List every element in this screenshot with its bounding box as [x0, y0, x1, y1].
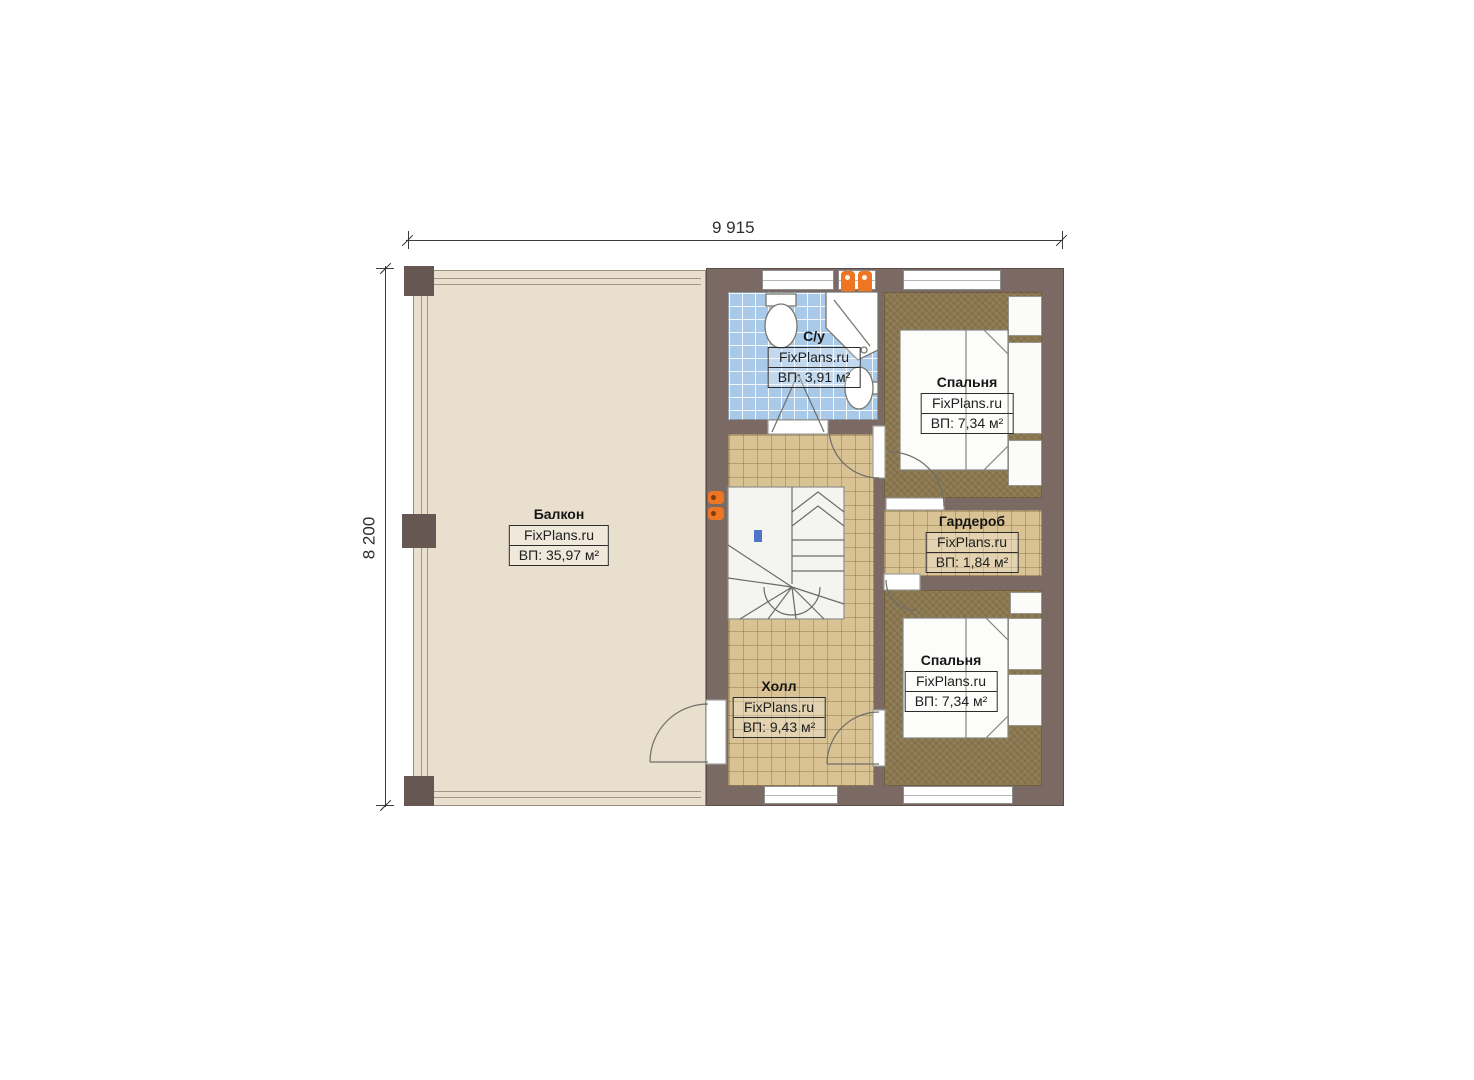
room-label-bedroom2: Спальня FixPlans.ru ВП: 7,34 м²: [905, 652, 998, 712]
stairs-symbol: [728, 487, 844, 619]
dimension-width-value: 9 915: [712, 218, 755, 238]
area-box: FixPlans.ru ВП: 7,34 м²: [905, 671, 998, 712]
brand-watermark: FixPlans.ru: [769, 348, 860, 368]
room-name: Спальня: [921, 374, 1014, 390]
area-box: FixPlans.ru ВП: 35,97 м²: [509, 525, 609, 566]
room-name: Гардероб: [926, 513, 1019, 529]
room-label-bedroom1: Спальня FixPlans.ru ВП: 7,34 м²: [921, 374, 1014, 434]
brand-watermark: FixPlans.ru: [510, 526, 608, 546]
dimension-height-value: 8 200: [359, 517, 379, 560]
area-box: FixPlans.ru ВП: 9,43 м²: [733, 697, 826, 738]
room-label-balcony: Балкон FixPlans.ru ВП: 35,97 м²: [509, 506, 609, 566]
brand-watermark: FixPlans.ru: [906, 672, 997, 692]
room-name: С/у: [768, 328, 861, 344]
door-bedroom2: [884, 574, 920, 610]
room-name: Холл: [733, 678, 826, 694]
stairs-marker: [754, 530, 762, 542]
area-box: FixPlans.ru ВП: 7,34 м²: [921, 393, 1014, 434]
room-area: ВП: 3,91 м²: [769, 368, 860, 387]
dimension-line: [406, 240, 1062, 241]
room-label-bathroom: С/у FixPlans.ru ВП: 3,91 м²: [768, 328, 861, 388]
room-label-wardrobe: Гардероб FixPlans.ru ВП: 1,84 м²: [926, 513, 1019, 573]
door-balcony: [650, 700, 726, 764]
room-area: ВП: 35,97 м²: [510, 546, 608, 565]
area-box: FixPlans.ru ВП: 1,84 м²: [926, 532, 1019, 573]
brand-watermark: FixPlans.ru: [927, 533, 1018, 553]
floor-plan: Балкон FixPlans.ru ВП: 35,97 м² С/у FixP…: [0, 0, 1474, 1080]
room-name: Балкон: [509, 506, 609, 522]
room-area: ВП: 1,84 м²: [927, 553, 1018, 572]
door-bedroom1: [829, 426, 885, 478]
room-name: Спальня: [905, 652, 998, 668]
brand-watermark: FixPlans.ru: [922, 394, 1013, 414]
room-area: ВП: 7,34 м²: [922, 414, 1013, 433]
room-area: ВП: 9,43 м²: [734, 718, 825, 737]
area-box: FixPlans.ru ВП: 3,91 м²: [768, 347, 861, 388]
plan-symbols-layer: [0, 0, 1474, 1080]
brand-watermark: FixPlans.ru: [734, 698, 825, 718]
room-label-hall: Холл FixPlans.ru ВП: 9,43 м²: [733, 678, 826, 738]
dimension-line: [385, 266, 386, 807]
door-hall-south: [827, 710, 885, 766]
room-area: ВП: 7,34 м²: [906, 692, 997, 711]
